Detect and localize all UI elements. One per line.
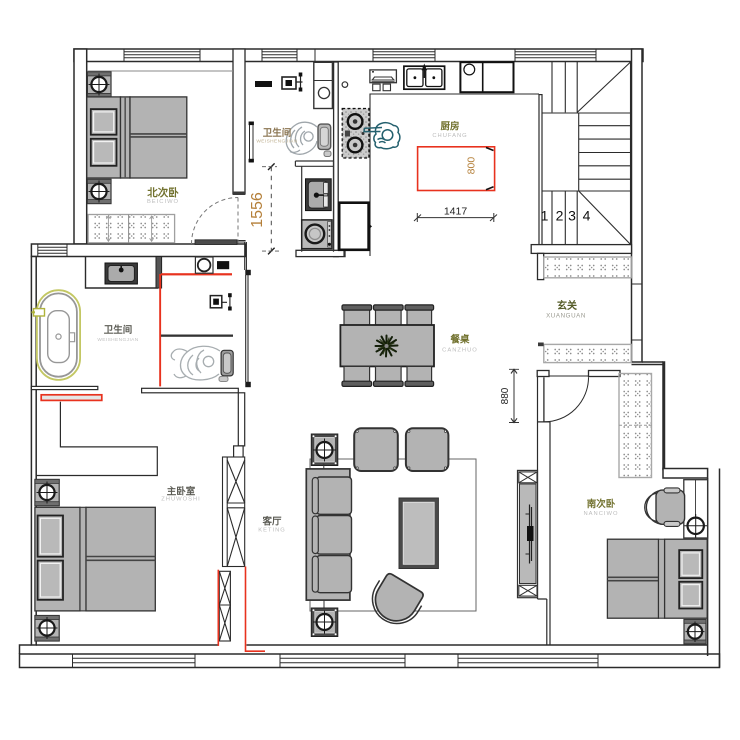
- svg-text:XUANGUAN: XUANGUAN: [546, 312, 586, 319]
- svg-text:BEICIWO: BEICIWO: [147, 199, 179, 205]
- svg-text:卫生间: 卫生间: [263, 127, 292, 139]
- svg-text:厨房: 厨房: [440, 121, 459, 133]
- svg-text:北次卧: 北次卧: [147, 186, 179, 199]
- svg-text:CANZHUO: CANZHUO: [442, 348, 478, 354]
- svg-text:ZHUWOSHI: ZHUWOSHI: [161, 497, 201, 503]
- svg-text:WEISHENGJIAN: WEISHENGJIAN: [97, 337, 138, 343]
- svg-text:南次卧: 南次卧: [587, 498, 616, 510]
- svg-text:玄关: 玄关: [557, 299, 577, 312]
- svg-text:1417: 1417: [444, 206, 468, 218]
- svg-text:WEISHENGJIAN: WEISHENGJIAN: [256, 139, 297, 145]
- svg-text:1556: 1556: [249, 192, 266, 228]
- svg-text:CHUFANG: CHUFANG: [432, 133, 467, 139]
- svg-text:餐桌: 餐桌: [449, 334, 470, 346]
- svg-text:卫生间: 卫生间: [104, 324, 133, 336]
- svg-text:880: 880: [500, 387, 511, 404]
- svg-text:KETING: KETING: [258, 528, 286, 534]
- svg-text:1: 1: [541, 208, 549, 224]
- svg-text:800: 800: [465, 157, 477, 175]
- svg-text:3: 3: [568, 208, 576, 224]
- svg-text:NANCIWO: NANCIWO: [583, 511, 618, 517]
- svg-text:2: 2: [556, 208, 564, 224]
- svg-text:4: 4: [583, 208, 591, 224]
- svg-text:客厅: 客厅: [261, 516, 282, 528]
